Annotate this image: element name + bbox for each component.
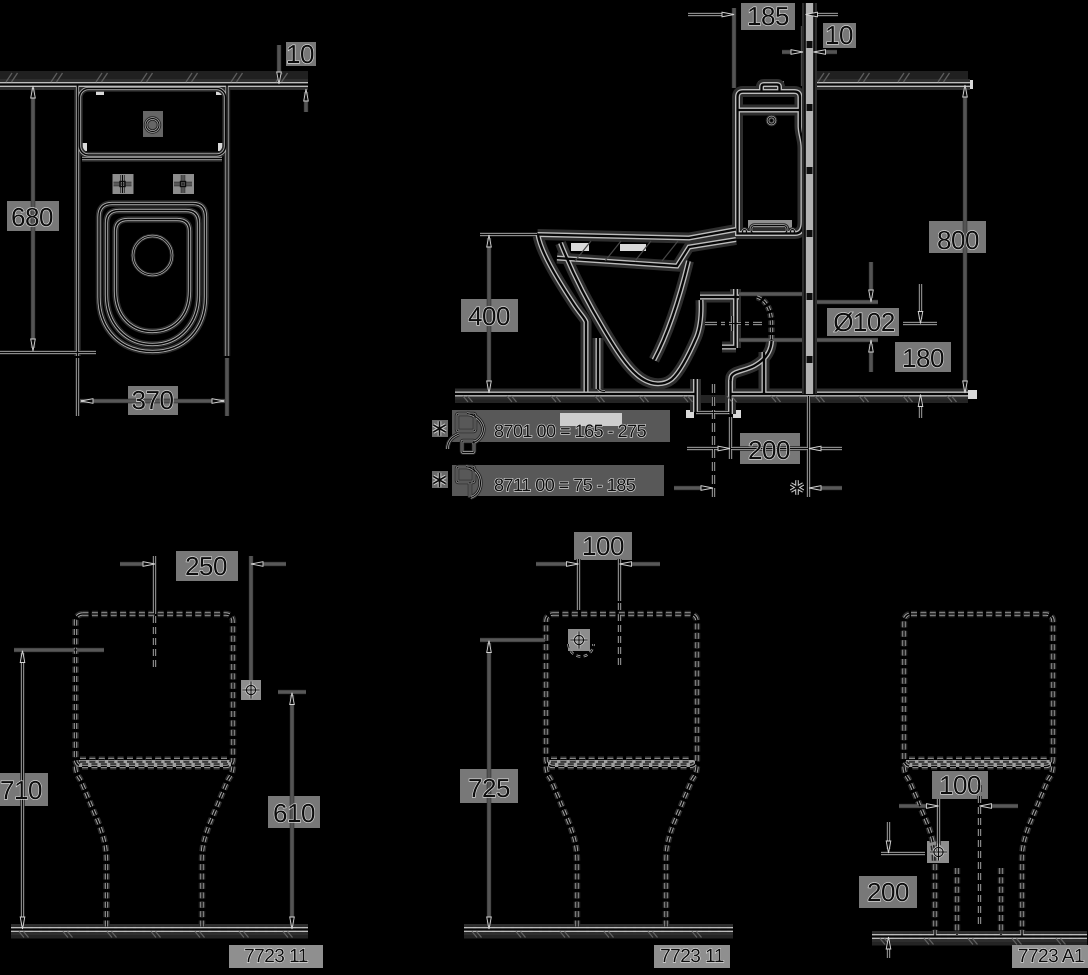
- svg-text:100: 100: [939, 770, 981, 800]
- svg-text:7723 A1: 7723 A1: [1018, 946, 1084, 967]
- svg-text:180: 180: [902, 343, 944, 373]
- svg-text:Ø102: Ø102: [833, 307, 895, 337]
- svg-text:610: 610: [273, 798, 315, 828]
- svg-text:710: 710: [0, 775, 42, 805]
- svg-text:8701 00 = 165 - 275: 8701 00 = 165 - 275: [494, 421, 647, 441]
- svg-text:800: 800: [937, 225, 979, 255]
- svg-text:7723 11: 7723 11: [244, 946, 308, 967]
- svg-text:8711 00 = 75 - 185: 8711 00 = 75 - 185: [494, 475, 636, 495]
- svg-text:10: 10: [286, 39, 314, 69]
- svg-text:400: 400: [468, 301, 510, 331]
- svg-text:100: 100: [582, 531, 624, 561]
- svg-text:250: 250: [185, 551, 227, 581]
- svg-text:7723 11: 7723 11: [660, 946, 724, 967]
- svg-text:370: 370: [132, 385, 174, 415]
- svg-text:200: 200: [748, 435, 790, 465]
- svg-text:200: 200: [867, 877, 909, 907]
- svg-text:185: 185: [747, 1, 789, 31]
- svg-text:680: 680: [11, 202, 53, 232]
- svg-text:10: 10: [825, 20, 853, 50]
- svg-text:725: 725: [468, 773, 510, 803]
